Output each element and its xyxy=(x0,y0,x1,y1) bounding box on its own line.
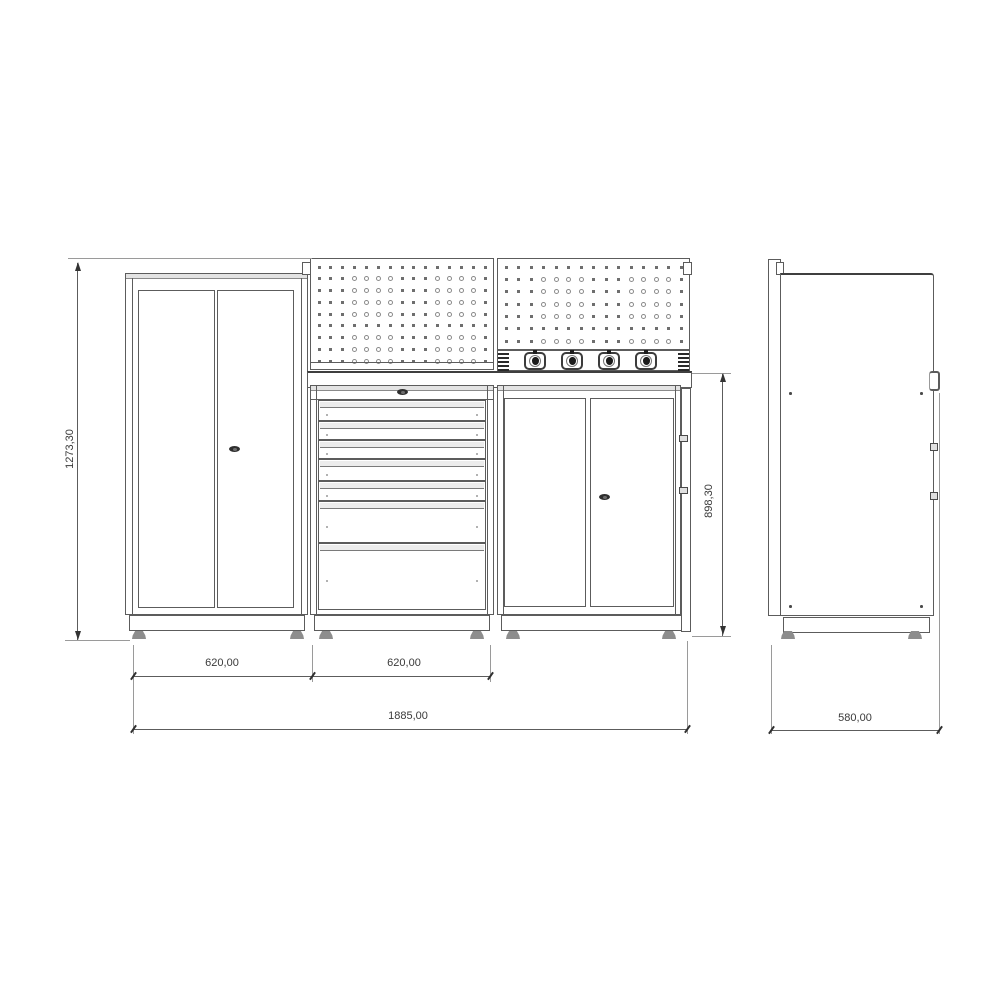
arrow-down-icon xyxy=(720,626,726,635)
ext-line-bottom-left xyxy=(65,640,130,641)
ext-line-x133 xyxy=(133,645,134,734)
dimension-annotations: 1273,30 898,30 620,00 620,00 1885,00 580… xyxy=(0,0,1000,1000)
side-panel-screw-dot xyxy=(920,605,923,608)
dim-label-total-width: 1885,00 xyxy=(358,710,458,722)
ext-line-x939 xyxy=(939,393,940,734)
side-panel-screw-dot xyxy=(789,392,792,395)
dim-line-total-width xyxy=(133,729,687,730)
ext-line-x771 xyxy=(771,645,772,734)
arrow-up-icon xyxy=(75,262,81,271)
dim-label-depth: 580,00 xyxy=(805,712,905,724)
dim-label-height-total: 1273,30 xyxy=(64,399,76,499)
dim-label-middle-module-width: 620,00 xyxy=(364,657,444,669)
arrow-down-icon xyxy=(75,631,81,640)
dim-line-height-total xyxy=(77,263,78,640)
side-panel-screw-dot xyxy=(920,392,923,395)
ext-line-floor-right xyxy=(692,636,731,637)
ext-line-x687 xyxy=(687,641,688,734)
arrow-up-icon xyxy=(720,373,726,382)
dim-label-left-module-width: 620,00 xyxy=(182,657,262,669)
dim-label-worktop-height: 898,30 xyxy=(703,451,715,551)
side-panel-screw-dot xyxy=(789,605,792,608)
dim-line-worktop-height xyxy=(722,374,723,636)
dim-line-depth xyxy=(771,730,939,731)
ext-line-top xyxy=(68,258,312,259)
technical-drawing-canvas: 1273,30 898,30 620,00 620,00 1885,00 580… xyxy=(0,0,1000,1000)
